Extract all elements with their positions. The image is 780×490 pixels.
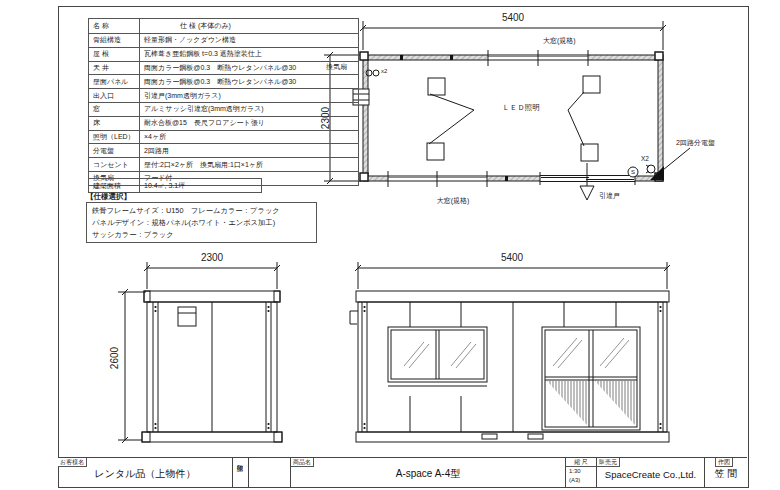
title-block-stamp-cell — [249, 458, 291, 487]
plan-label-window-top: 大窓(規格) — [543, 36, 576, 46]
title-block: お客様名 レンタル品（上物件） 確認印 商品名 A-space A-4型 縮 尺… — [58, 457, 747, 487]
side-dim-width: 2300 — [182, 252, 242, 263]
options-box: 鉄骨フレームサイズ：U150 フレームカラー：ブラック パネルデザイン：規格パネ… — [86, 202, 317, 243]
downspout — [350, 311, 358, 324]
option-line: サッシカラー：ブラック — [92, 229, 316, 241]
plan-switch-letter: S — [629, 169, 637, 175]
title-block-seller-cell: 販売元 SpaceCreate Co.,Ltd. — [597, 458, 705, 487]
scale-label: 縮 尺 — [566, 458, 596, 467]
front-sliding-door — [542, 327, 640, 430]
front-dim-width: 5400 — [482, 252, 542, 263]
table-row: 屋 根瓦棒葺き亜鉛鋼板 t=0.3 遮熱塗装仕上 — [89, 47, 359, 61]
plan-dim-width: 5400 — [483, 12, 543, 23]
side-dim-height: 2600 — [109, 328, 121, 388]
title-block-author-cell: 作図 笠 間 — [705, 458, 747, 487]
spec-header-value: 仕 様 (本体のみ) — [140, 19, 359, 34]
title-block-customer-cell: お客様名 レンタル品（上物件） — [58, 458, 233, 487]
front-elevation — [350, 262, 670, 442]
option-line: パネルデザイン：規格パネル(ホワイト・エンボス加工) — [92, 217, 316, 229]
scale-value: 1:30 — [569, 468, 581, 474]
table-row: 建築面積 10.4㎡, 3.1坪 — [89, 179, 262, 193]
area-table: 建築面積 10.4㎡, 3.1坪 — [88, 178, 262, 193]
plan-dim-height: 2300 — [320, 88, 332, 148]
table-row: 床耐水合板@15 長尺フロアシート張り — [89, 116, 359, 130]
table-row: 窓アルミサッシ引違窓(3mm透明ガラス) — [89, 102, 359, 116]
wall-outlet-symbol — [646, 165, 655, 173]
table-row: コンセント壁付:2口×2ヶ所 換気扇用:1口×1ヶ所 — [89, 158, 359, 172]
plan-label-fan-count: x2 — [381, 68, 387, 74]
spec-header-name: 名 称 — [89, 19, 140, 34]
table-row: 天 井両面カラー鋼板@0.3 断熱ウレタンパネル@30 — [89, 61, 359, 75]
spec-table: 名 称 仕 様 (本体のみ) 骨組構造軽量形鋼・ノックダウン構造 屋 根瓦棒葺き… — [88, 18, 359, 186]
table-row: 出入口引違戸(3mm透明ガラス) — [89, 89, 359, 103]
options-title: 【仕様選択】 — [86, 192, 131, 202]
title-block-scale-cell: 縮 尺 1:30 (A3) — [566, 458, 597, 487]
table-row: 分電盤2回路用 — [89, 144, 359, 158]
plan-label-door: 引違戸 — [599, 191, 620, 201]
table-row: 壁面パネル両面カラー鋼板@0.3 断熱ウレタンパネル@30 — [89, 75, 359, 89]
table-header-row: 名 称 仕 様 (本体のみ) — [89, 19, 359, 34]
plan-label-fan: 換気扇 — [326, 62, 347, 72]
drawing-sheet: 名 称 仕 様 (本体のみ) 骨組構造軽量形鋼・ノックダウン構造 屋 根瓦棒葺き… — [0, 0, 780, 490]
seller-name: SpaceCreate Co.,Ltd. — [597, 469, 704, 480]
author-label: 作図 — [715, 458, 733, 467]
product-name: A-space A-4型 — [291, 467, 565, 481]
scale-paper: (A3) — [569, 477, 580, 483]
side-elevation — [118, 262, 282, 443]
table-row: 照明（LED）×4ヶ所 — [89, 130, 359, 144]
seller-label: 販売元 — [597, 458, 620, 467]
option-line: 鉄骨フレームサイズ：U150 フレームカラー：ブラック — [92, 205, 316, 217]
plan-label-outlet-count: X2 — [641, 155, 649, 162]
title-block-stamp-label-cell: 確認印 — [233, 458, 249, 487]
plan-label-window-bottom: 大窓(規格) — [424, 196, 482, 206]
customer-name: レンタル品（上物件） — [58, 467, 232, 481]
vent-hood — [178, 307, 196, 326]
front-window — [388, 327, 487, 386]
plan-label-led: ＬＥＤ照明 — [494, 103, 548, 113]
product-label: 商品名 — [291, 458, 314, 467]
table-row: 骨組構造軽量形鋼・ノックダウン構造 — [89, 34, 359, 48]
title-block-product-cell: 商品名 A-space A-4型 — [291, 458, 566, 487]
customer-label: お客様名 — [58, 458, 87, 467]
plan-label-breaker: 2回路分電盤 — [676, 138, 715, 148]
author-name: 笠 間 — [705, 467, 747, 481]
